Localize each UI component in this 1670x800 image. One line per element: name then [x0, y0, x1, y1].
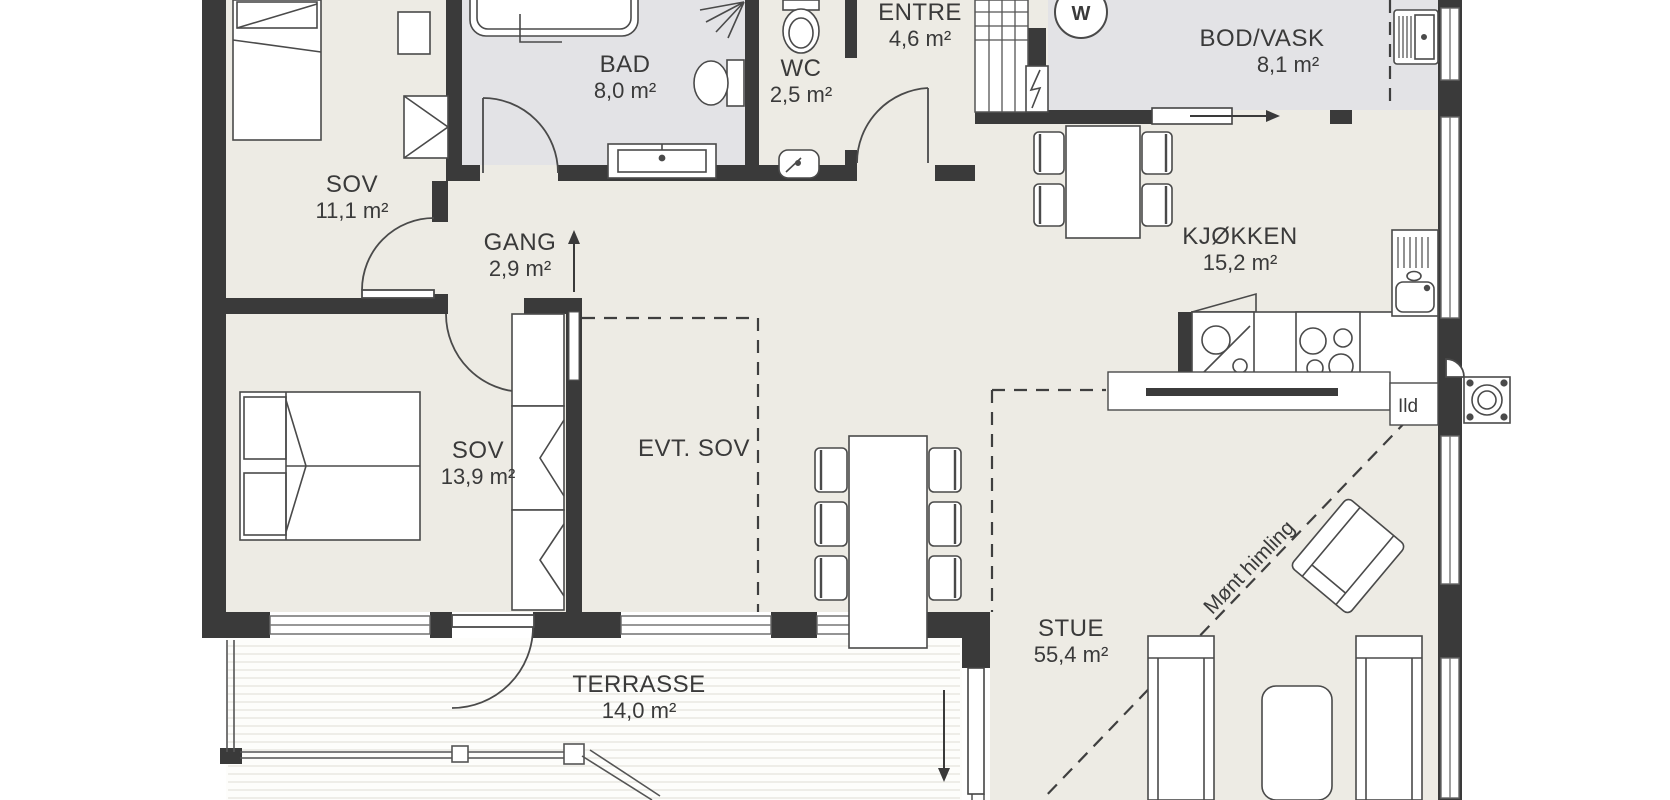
area-bod-vask: 8,1 m²: [1257, 52, 1319, 77]
bed-double: [240, 392, 420, 540]
area-gang: 2,9 m²: [489, 256, 551, 281]
label-kjokken: KJØKKEN: [1182, 223, 1298, 250]
label-bod-vask: BOD/VASK: [1200, 25, 1325, 52]
label-gang: GANG: [484, 229, 557, 256]
wardrobe-sov1: [404, 96, 448, 158]
coffee-table: [1262, 686, 1332, 800]
area-terrasse: 14,0 m²: [602, 698, 677, 723]
area-wc: 2,5 m²: [770, 82, 832, 107]
kitchen-bench: [1108, 372, 1390, 410]
label-sov2: SOV: [452, 437, 504, 464]
label-sov1: SOV: [326, 171, 378, 198]
label-terrasse: TERRASSE: [572, 671, 705, 698]
sink-wc: [779, 150, 819, 178]
floor-plan: SOV 11,1 m² BAD 8,0 m² WC 2,5 m² ENTRE 4…: [0, 0, 1670, 800]
area-entre: 4,6 m²: [889, 26, 951, 51]
stairs: [975, 0, 1028, 112]
label-evt-sov: EVT. SOV: [638, 435, 750, 462]
label-washer: W: [1072, 3, 1091, 25]
label-bad: BAD: [600, 51, 651, 78]
area-stue: 55,4 m²: [1034, 642, 1109, 667]
electrical-cabinet: [1026, 66, 1048, 112]
wardrobe-sov2: [512, 314, 564, 610]
area-bad: 8,0 m²: [594, 78, 656, 103]
area-sov2: 13,9 m²: [441, 464, 516, 489]
label-stue: STUE: [1038, 615, 1104, 642]
sofa-right: [1356, 636, 1422, 800]
sofa-left: [1148, 636, 1214, 800]
area-sov1: 11,1 m²: [316, 198, 389, 223]
bathroom-vanity: [608, 144, 716, 178]
laundry-sink-unit: [1394, 10, 1438, 64]
kitchen-sink-unit: [1392, 230, 1438, 316]
chimney: [1464, 377, 1510, 423]
label-wc: WC: [781, 55, 822, 82]
toilet-wc: [783, 0, 819, 53]
label-entre: ENTRE: [878, 0, 962, 26]
pocket-door-slot: [569, 312, 579, 380]
bed-single: [233, 0, 321, 140]
label-fireplace: Ild: [1398, 396, 1418, 417]
floor-plan-drawing: SOV 11,1 m² BAD 8,0 m² WC 2,5 m² ENTRE 4…: [0, 0, 1670, 800]
area-kjokken: 15,2 m²: [1203, 250, 1278, 275]
bathtub: [470, 0, 638, 36]
toilet-bad: [694, 60, 744, 106]
nightstand: [398, 12, 430, 54]
